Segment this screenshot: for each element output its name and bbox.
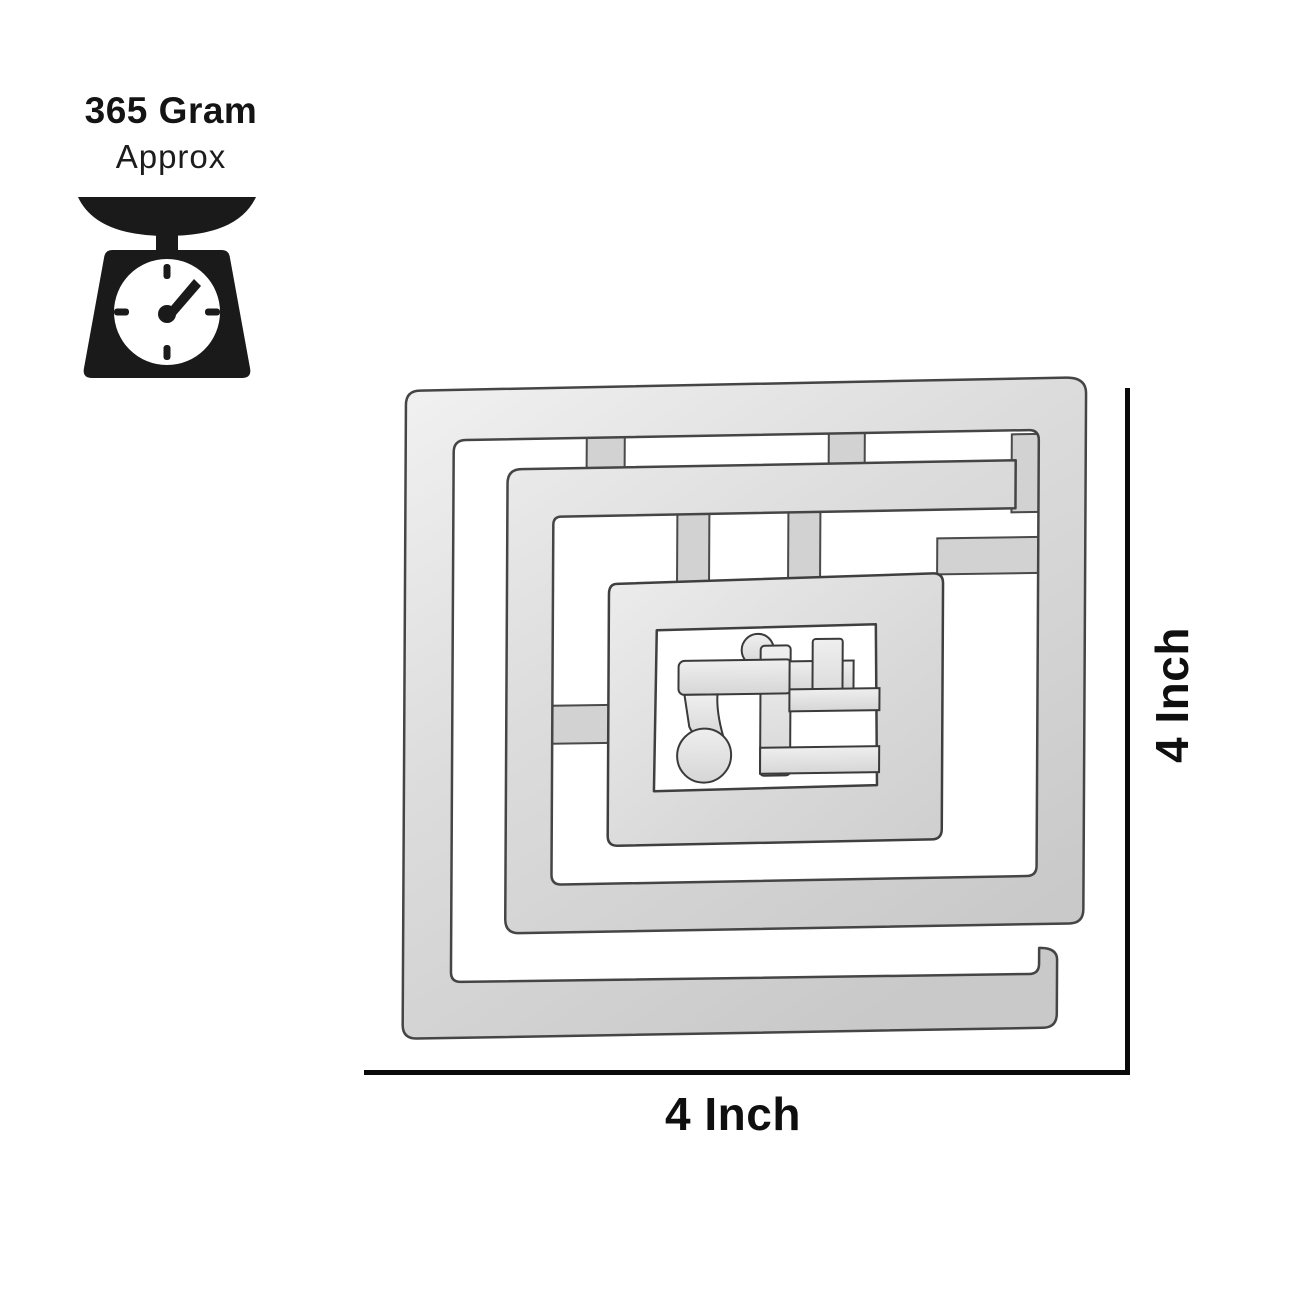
- devanagari-glyph-cutout: [677, 632, 880, 783]
- product-infographic-page: { "weight_badge": { "value": "365 Gram",…: [0, 0, 1300, 1300]
- width-dimension-line: [364, 1070, 1130, 1075]
- height-dimension-line: [1125, 388, 1130, 1074]
- square-spiral-band: [403, 377, 1087, 1038]
- width-dimension-label: 4 Inch: [583, 1088, 883, 1140]
- height-dimension-label: 4 Inch: [1142, 545, 1202, 845]
